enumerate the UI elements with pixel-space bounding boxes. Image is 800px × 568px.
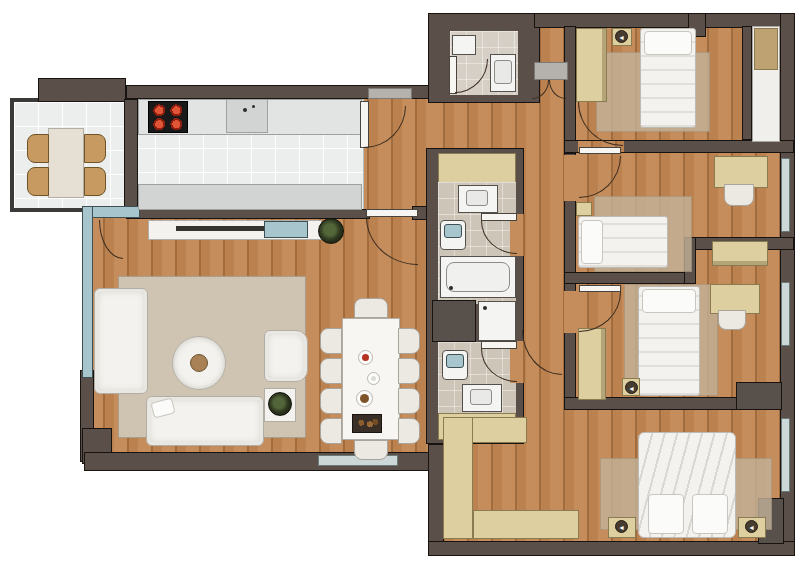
bedroom2-nightstand xyxy=(576,202,592,216)
plate-red-food xyxy=(362,354,369,361)
bedroom2-pillow xyxy=(581,220,603,264)
bedroom2-window xyxy=(781,158,790,232)
bathroom1-toilet-lid xyxy=(444,224,462,238)
master-blanket-fold xyxy=(648,494,684,534)
bathroom2-sink-basin xyxy=(470,389,492,405)
bedroom3-pillow xyxy=(642,289,696,313)
living-glass-wall xyxy=(82,206,93,378)
shaft xyxy=(432,300,476,342)
balcony-table xyxy=(48,128,84,198)
bathroom2-door-leaf xyxy=(481,341,517,349)
stove xyxy=(148,101,188,133)
master-lamp-left-icon: ◂ xyxy=(615,520,628,533)
wall-b2-b3-divider-left xyxy=(564,272,696,284)
balcony-chair xyxy=(84,134,106,163)
wall-balcony-kitchen xyxy=(124,99,138,213)
plant-console xyxy=(318,218,344,244)
hall-door-threshold xyxy=(368,88,412,99)
dining-chair xyxy=(398,328,420,354)
balcony-chair xyxy=(84,167,106,196)
bathroom-cabinet-top xyxy=(438,153,516,183)
dining-chair xyxy=(354,298,388,318)
master-window xyxy=(781,418,790,492)
dining-chair xyxy=(398,358,420,384)
hall-living-door-leaf xyxy=(366,209,418,217)
tv-console-deco xyxy=(264,221,308,238)
dining-chair xyxy=(354,440,388,460)
wall-master-left xyxy=(428,444,444,542)
master-wardrobe-left xyxy=(443,417,473,539)
bowl-brown-food xyxy=(360,394,369,403)
plant-side-table xyxy=(268,392,292,416)
bedroom2-desk-chair xyxy=(724,184,754,206)
balcony-door-glass xyxy=(92,206,140,218)
kitchen-sink xyxy=(226,99,268,133)
wall-bay xyxy=(742,26,752,140)
bathtub-drain xyxy=(449,286,453,290)
bedroom3-wardrobe xyxy=(578,328,606,400)
bedroom3-lamp-icon: ◂ xyxy=(625,381,638,394)
bedroom3-window xyxy=(781,282,790,346)
wc-sink xyxy=(452,35,476,55)
wall-bottom-right xyxy=(428,541,795,556)
kitchen-faucet xyxy=(243,108,247,112)
plate-white-inner xyxy=(371,376,376,381)
entry-threshold xyxy=(534,62,568,80)
armchair xyxy=(264,330,308,382)
dining-chair xyxy=(398,388,420,414)
dining-chair xyxy=(398,418,420,444)
kitchen-counter-bottom xyxy=(138,184,362,210)
bathtub-inner xyxy=(446,262,510,292)
bowl-brown xyxy=(356,390,373,407)
plate-white xyxy=(367,372,380,385)
dining-chair xyxy=(320,358,342,384)
bedroom2-wardrobe xyxy=(712,241,768,266)
bedroom1-pillow xyxy=(644,31,692,55)
master-lamp-right-icon: ◂ xyxy=(745,520,758,533)
master-wardrobe-bottom xyxy=(473,510,579,539)
bedroom1-wardrobe xyxy=(576,28,607,102)
plate-red xyxy=(358,350,373,365)
kitchen-faucet-handle xyxy=(252,105,255,108)
shower-drain xyxy=(483,306,487,310)
wall-column-bedroom3 xyxy=(736,382,782,410)
dining-chair xyxy=(320,388,342,414)
master-blanket-fold xyxy=(692,494,728,534)
bedroom3-door-gap xyxy=(564,291,576,333)
wall-balcony-top xyxy=(38,78,126,102)
bedroom2-door-gap xyxy=(564,155,576,201)
bedroom3-desk-chair xyxy=(718,310,746,330)
coffee-table-center xyxy=(190,354,208,372)
balcony-chair xyxy=(27,134,49,163)
bedroom1-bay-cabinet xyxy=(754,28,778,70)
bathroom1-door-leaf xyxy=(481,213,517,221)
bedroom2-door-leaf xyxy=(579,147,621,154)
sofa-chaise xyxy=(94,288,148,394)
floor-plan: ◂ ◂ ◂ ◂ xyxy=(0,0,800,568)
serving-tray xyxy=(352,414,382,433)
balcony-chair xyxy=(27,167,49,196)
bedroom1-lamp-icon: ◂ xyxy=(615,30,628,43)
bathroom2-toilet-lid xyxy=(446,354,464,368)
dining-chair xyxy=(320,328,342,354)
wc-toilet-seat xyxy=(494,60,512,84)
bathroom1-sink-basin xyxy=(466,190,488,206)
dining-chair xyxy=(320,418,342,444)
bedroom3-door-leaf xyxy=(579,285,621,292)
